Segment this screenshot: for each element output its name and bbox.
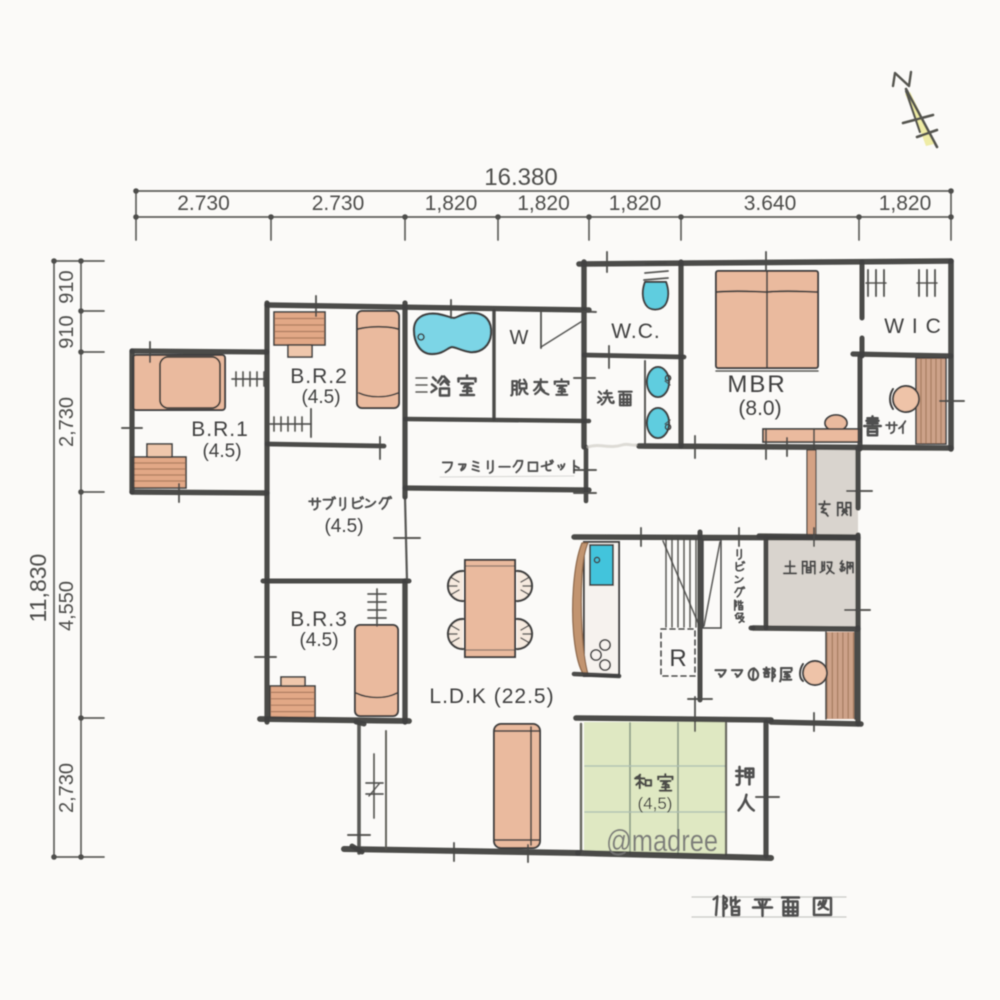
- svg-text:(4.5): (4.5): [202, 441, 241, 462]
- svg-text:2.730: 2.730: [177, 192, 230, 215]
- svg-text:(4.5): (4.5): [324, 516, 363, 537]
- svg-text:(4,5): (4,5): [638, 794, 673, 813]
- svg-text:910: 910: [56, 315, 78, 348]
- svg-text:W I C: W I C: [884, 315, 942, 338]
- svg-text:11,830: 11,830: [25, 554, 51, 623]
- svg-text:B.R.3: B.R.3: [290, 608, 348, 631]
- svg-text:1,820: 1,820: [425, 192, 478, 215]
- svg-text:16.380: 16.380: [484, 164, 557, 191]
- svg-text:1,820: 1,820: [609, 192, 662, 215]
- svg-text:(8.0): (8.0): [738, 397, 781, 420]
- svg-text:910: 910: [56, 270, 78, 303]
- svg-text:B.R.1: B.R.1: [191, 418, 249, 441]
- svg-text:MBR: MBR: [727, 371, 786, 398]
- svg-text:W.C.: W.C.: [611, 320, 661, 343]
- svg-text:W: W: [510, 327, 529, 349]
- svg-text:2,730: 2,730: [56, 763, 78, 813]
- svg-text:B.R.2: B.R.2: [290, 365, 348, 388]
- svg-text:1,820: 1,820: [517, 192, 570, 215]
- svg-text:@madree: @madree: [606, 823, 718, 858]
- svg-text:L.D.K (22.5): L.D.K (22.5): [429, 685, 554, 708]
- svg-text:4,550: 4,550: [56, 581, 78, 631]
- svg-text:2.730: 2.730: [312, 192, 365, 215]
- svg-text:R: R: [669, 645, 686, 672]
- svg-text:1,820: 1,820: [879, 192, 932, 215]
- svg-text:(4.5): (4.5): [299, 630, 338, 651]
- svg-text:3.640: 3.640: [744, 192, 797, 215]
- svg-text:2,730: 2,730: [56, 397, 78, 447]
- svg-text:(4.5): (4.5): [301, 387, 340, 408]
